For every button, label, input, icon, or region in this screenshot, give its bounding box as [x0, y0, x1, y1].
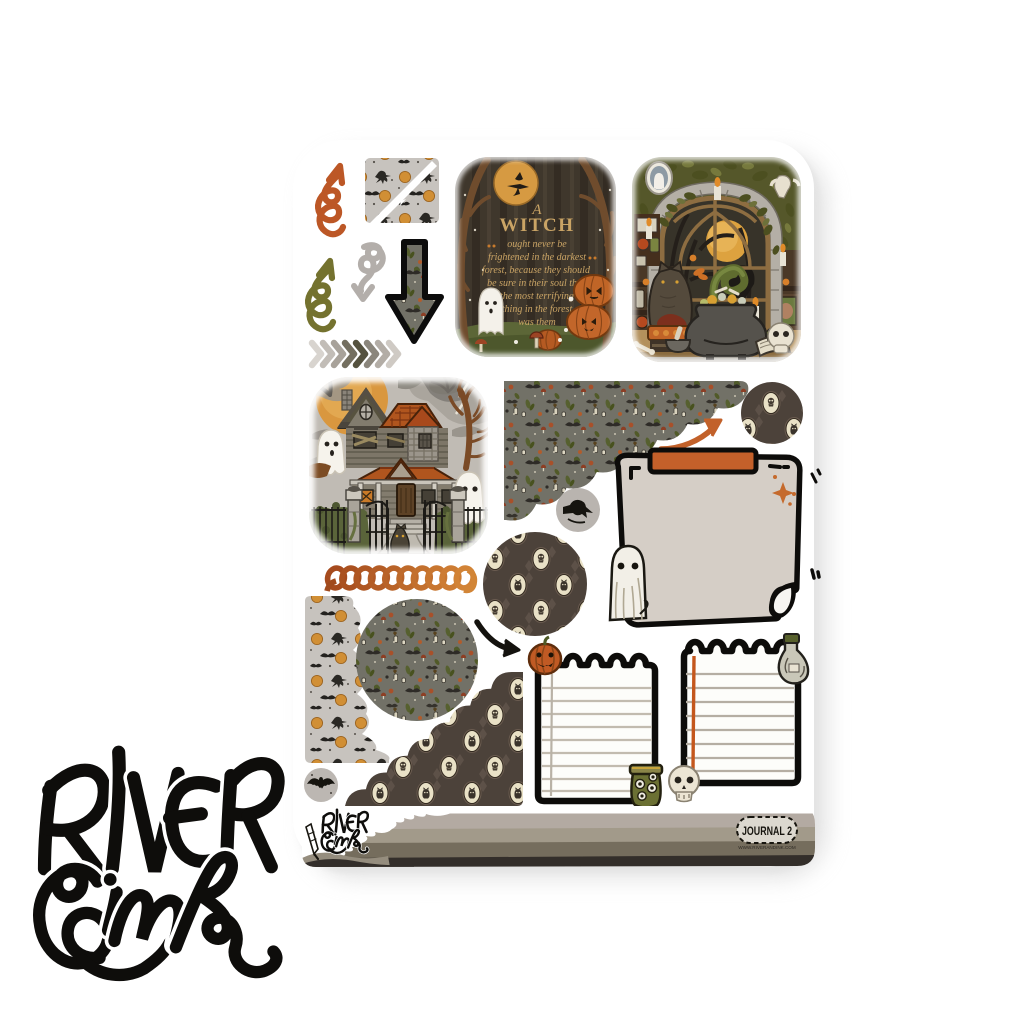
svg-text:was them: was them [518, 317, 556, 328]
svg-text:be sure in their soul that: be sure in their soul that [487, 278, 585, 289]
svg-text:thing in the forest: thing in the forest [502, 304, 573, 315]
svg-text:ought never be: ought never be [507, 239, 567, 250]
svg-text:forest, because they should: forest, because they should [482, 265, 591, 276]
svg-text:WWW.RIVERANDINK.COM: WWW.RIVERANDINK.COM [738, 845, 796, 850]
svg-text:WITCH: WITCH [499, 215, 574, 236]
svg-text:JOURNAL 2: JOURNAL 2 [742, 824, 792, 838]
svg-text:the most terrifying: the most terrifying [500, 291, 574, 302]
svg-text:frightened in the darkest: frightened in the darkest [488, 252, 586, 263]
